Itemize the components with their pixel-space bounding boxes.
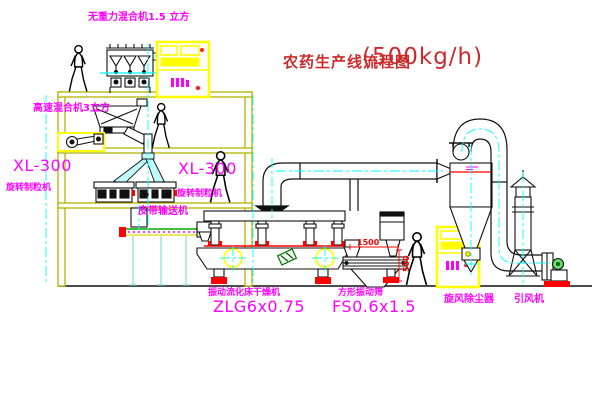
dimension-sieve-length: 1500 [357,239,379,247]
gravity-mixer [100,44,164,93]
label-granulator-left-model: XL-300 [13,158,72,174]
induced-draft-fan [542,253,570,287]
conveyor-legs [129,236,190,285]
control-cabinet-top [157,42,209,97]
dimension-sieve-height: 500 [403,255,411,272]
cabinet-buttons [446,261,459,270]
label-belt-conveyor: 皮带输送机 [138,207,188,217]
fan-base [544,281,570,287]
indicator-light [200,48,204,52]
fluid-bed-dryer [197,211,347,284]
label-fan: 引风机 [514,295,544,305]
belt-conveyor [119,208,206,285]
rotary-granulator-left [94,182,135,202]
label-cyclone: 旋风除尘器 [444,295,494,305]
conveyor-end-cap [119,227,126,237]
stub-couplings [208,241,345,246]
worker-figure-roof [69,46,87,92]
label-granulator-center-model: XL-300 [178,161,237,177]
rotary-granulator-right [136,182,177,202]
label-high-speed-mixer: 高速混合机3立方 [33,104,110,114]
worker-figure-floor2 [152,104,169,148]
vibrating-sieve [343,212,407,287]
label-dryer-model: ZLG6x0.75 [213,299,305,315]
y-splitter [114,153,164,186]
label-granulator-center-name: 旋转制粒机 [177,190,222,199]
exhaust-duct-main [256,159,437,217]
label-granulator-left-name: 旋转制粒机 [6,184,51,193]
flow-diagram-canvas: 农药生产线流程图 (500kg/h) 无重力混合机1.5 立方 高速混合机3立方… [0,0,600,403]
label-gravity-mixer: 无重力混合机1.5 立方 [88,13,189,23]
diagram-title-capacity: (500kg/h) [362,44,483,70]
label-sieve-model: FS0.6x1.5 [332,299,416,315]
